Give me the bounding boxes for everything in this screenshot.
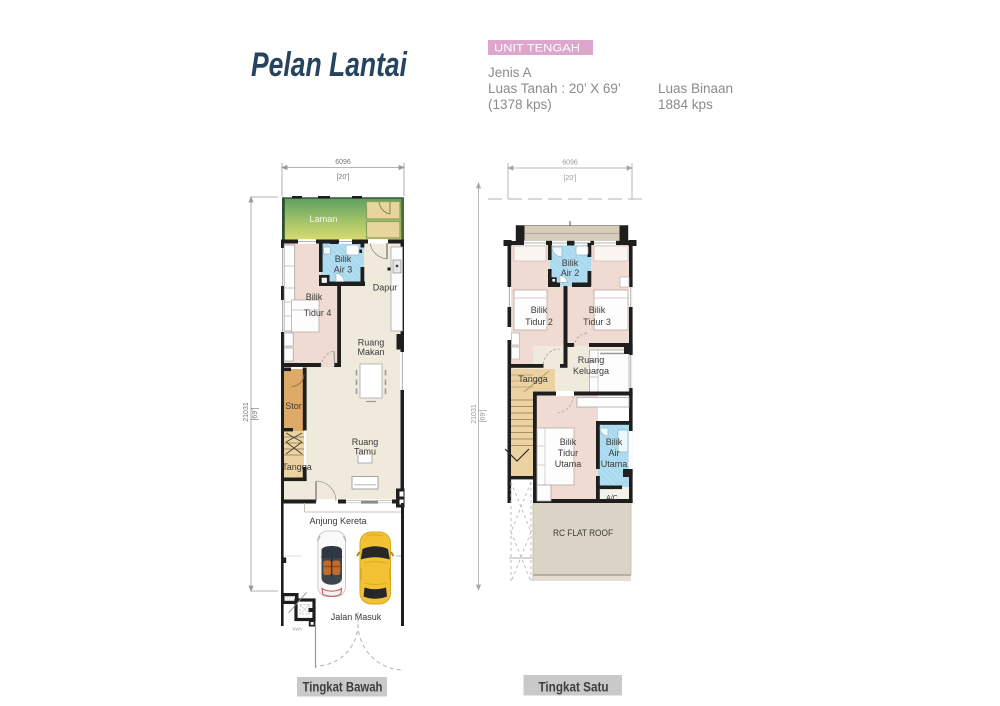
svg-text:Luas Tanah : 20’ X 69’: Luas Tanah : 20’ X 69’ (488, 81, 621, 96)
svg-text:Jenis A: Jenis A (488, 65, 532, 80)
svg-text:Utama: Utama (601, 459, 628, 469)
svg-text:A/C: A/C (606, 495, 618, 502)
svg-text:UNIT TENGAH: UNIT TENGAH (494, 43, 580, 55)
svg-text:Tangga: Tangga (518, 374, 548, 384)
svg-text:Bilik: Bilik (335, 254, 352, 264)
svg-text:6096: 6096 (335, 159, 351, 166)
svg-text:Ruang: Ruang (358, 338, 385, 348)
svg-text:Jalan Masuk: Jalan Masuk (331, 612, 382, 622)
svg-text:Bilik: Bilik (531, 305, 548, 315)
svg-text:Air 2: Air 2 (561, 268, 580, 278)
svg-text:Tingkat Satu: Tingkat Satu (539, 680, 609, 695)
svg-text:[20']: [20'] (336, 174, 349, 181)
svg-text:Tangga: Tangga (282, 462, 312, 472)
svg-text:Tidur 3: Tidur 3 (583, 317, 611, 327)
svg-text:Ruang: Ruang (352, 437, 379, 447)
svg-text:Tidur: Tidur (558, 448, 578, 458)
svg-text:Pelan Lantai: Pelan Lantai (251, 46, 408, 84)
svg-text:Anjung Kereta: Anjung Kereta (309, 516, 366, 526)
svg-text:Bilik: Bilik (606, 437, 623, 447)
svg-text:Bilik: Bilik (562, 258, 579, 268)
svg-text:Tidur 4: Tidur 4 (304, 308, 332, 318)
svg-text:kWh: kWh (293, 627, 302, 632)
svg-text:21031: 21031 (243, 402, 250, 422)
svg-text:Luas Binaan: Luas Binaan (658, 81, 733, 96)
svg-text:Utama: Utama (555, 459, 582, 469)
svg-text:Keluarga: Keluarga (573, 366, 609, 376)
svg-text:Dapur: Dapur (373, 283, 398, 293)
svg-text:Laman: Laman (310, 214, 338, 224)
svg-text:Makan: Makan (357, 347, 384, 357)
svg-text:1884 kps: 1884 kps (658, 97, 713, 112)
svg-text:Ruang: Ruang (578, 355, 605, 365)
svg-text:[20']: [20'] (563, 175, 576, 182)
svg-text:Bilik: Bilik (306, 292, 323, 302)
svg-text:RC FLAT ROOF: RC FLAT ROOF (553, 528, 613, 538)
svg-text:Bilik: Bilik (589, 305, 606, 315)
svg-text:[69']: [69'] (252, 407, 259, 420)
svg-text:21031: 21031 (471, 404, 478, 424)
svg-text:Tidur 2: Tidur 2 (525, 317, 553, 327)
svg-text:6096: 6096 (562, 160, 578, 167)
svg-text:[69']: [69'] (480, 409, 487, 422)
svg-text:Bilik: Bilik (560, 437, 577, 447)
svg-text:Air: Air (609, 448, 620, 458)
svg-text:Air 3: Air 3 (334, 265, 353, 275)
svg-text:(1378 kps): (1378 kps) (488, 97, 552, 112)
svg-text:Stor: Stor (285, 401, 302, 411)
svg-text:Tingkat Bawah: Tingkat Bawah (303, 680, 383, 695)
